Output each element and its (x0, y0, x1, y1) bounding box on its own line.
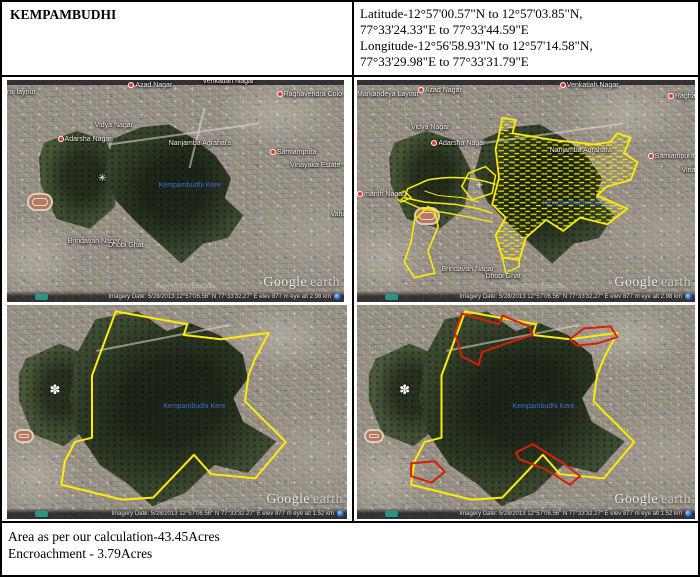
place-label: Samiampura (648, 153, 695, 161)
place-label: Nanjamba Agrahara (169, 140, 231, 148)
longitude-line-1: Longitude-12°56'58.93"N to 12°57'14.58"N… (360, 38, 692, 54)
tour-icon (385, 294, 398, 300)
red-place-dot-icon (431, 140, 437, 146)
globe-icon (685, 293, 692, 300)
satellite-panel-overview-survey: ✳ Markandeya Layout Azad Nagar (357, 80, 695, 302)
place-label: Venkatiah Nagar (202, 80, 254, 86)
status-bar: Imagery Date: 5/28/2013 12°57'06.56" N 7… (7, 508, 347, 519)
imagery-copyright: Image © 2016 DigitalGlobe (155, 284, 215, 290)
place-label: Raghavendra Colo (277, 91, 342, 99)
satellite-image-grid: ✳ raj layout Azad Nagar Venkatiah Nagar … (2, 77, 698, 523)
status-bar: Imagery Date: 5/28/2013 12°57'06.56" N 7… (7, 291, 344, 302)
place-label: Vidya Nagar (95, 122, 133, 130)
lake-name-label: Kempambudhi Kere (159, 182, 221, 189)
lake-name-label: Kempambudhi Kere (163, 403, 225, 410)
globe-icon (337, 510, 344, 517)
lake-name-label: Kempambudhi Kere (512, 403, 574, 410)
place-label: Samiampura (270, 149, 317, 157)
encroachment-line: Encroachment - 3.79Acres (8, 545, 692, 562)
globe-icon (334, 293, 341, 300)
lake-name-label: Kempambudhi Kere (543, 200, 605, 207)
red-place-dot-icon (560, 82, 566, 88)
latitude-line-2: 77°33'24.33"E to 77°33'44.59"E (360, 22, 692, 38)
globe-icon (685, 510, 692, 517)
red-place-dot-icon (270, 149, 276, 155)
coordinates-cell: Latitude-12°57'00.57"N to 12°57'03.85"N,… (352, 2, 698, 75)
red-place-dot-icon (277, 91, 283, 97)
place-label: Dhobi Ghat (485, 273, 520, 281)
latitude-line-1: Latitude-12°57'00.57"N to 12°57'03.85"N, (360, 6, 692, 22)
park-flower-icon: ✽ (50, 382, 61, 398)
imagery-copyright: Image © 2016 DigitalGlobe (506, 501, 566, 507)
status-bar: Imagery Date: 5/28/2013 12°57'06.56" N 7… (357, 291, 695, 302)
place-label: Vaha (331, 211, 344, 219)
stadium-track (27, 193, 53, 211)
page-title: KEMPAMBUDHI (2, 2, 350, 75)
place-label: Markandeya Layout (357, 91, 418, 99)
tour-icon (385, 511, 398, 517)
place-label: Vinaya (681, 167, 695, 175)
google-earth-watermark: Googleearth (266, 492, 343, 508)
imagery-seam-strip (7, 80, 344, 85)
lake-boundary-survey-overlay (357, 80, 695, 302)
place-label: raj layout (7, 89, 35, 97)
footer-notes: Area as per our calculation-43.45Acres E… (2, 523, 698, 567)
imagery-copyright: Image © 2016 DigitalGlobe (157, 501, 217, 507)
satellite-panel-overview-plain: ✳ raj layout Azad Nagar Venkatiah Nagar … (7, 80, 344, 302)
satellite-panel-zoom-encroachment: ✽ Kempambudhi Kere Image © 2016 DigitalG… (357, 305, 695, 519)
google-earth-watermark: Googleearth (263, 275, 340, 291)
longitude-line-2: 77°33'29.98"E to 77°33'31.79"E (360, 54, 692, 70)
park-asterisk-icon: ✳ (475, 180, 483, 191)
red-place-dot-icon (668, 93, 674, 99)
red-place-dot-icon (58, 136, 64, 142)
red-place-dot-icon (418, 87, 424, 93)
place-label: Azad Nagar (128, 82, 172, 90)
encroachment-overlay (357, 305, 695, 519)
document-page: KEMPAMBUDHI Latitude-12°57'00.57"N to 12… (0, 0, 700, 577)
park-flower-icon: ✽ (399, 382, 410, 398)
place-label: Adarsha Nagar (431, 140, 485, 148)
column-divider (352, 77, 354, 521)
status-bar: Imagery Date: 5/28/2013 12°57'06.56" N 7… (357, 508, 695, 519)
red-place-dot-icon (128, 82, 134, 88)
area-calculation-line: Area as per our calculation-43.45Acres (8, 528, 692, 545)
place-label: Nanjamba Agrahara (550, 147, 612, 155)
imagery-copyright: Image © 2016 DigitalGlobe (506, 284, 566, 290)
place-label: Dhobi Ghat (108, 242, 143, 250)
google-earth-watermark: Googleearth (614, 275, 691, 291)
lake-boundary-overlay (7, 305, 347, 519)
place-label: Venkatiah Nagar (560, 82, 619, 90)
place-label: Raghaven (668, 93, 695, 101)
place-label: Vinayaka Estate (290, 162, 340, 170)
place-label: manth Nagar (357, 191, 404, 199)
tour-icon (35, 511, 48, 517)
red-place-dot-icon (648, 153, 654, 159)
red-place-dot-icon (357, 191, 363, 197)
place-label: Vidya Nagar (411, 124, 449, 132)
satellite-panel-zoom-boundary: ✽ Kempambudhi Kere Image © 2016 DigitalG… (7, 305, 347, 519)
place-label: Adarsha Nagar (58, 136, 112, 144)
tour-icon (35, 294, 48, 300)
park-asterisk-icon: ✳ (98, 173, 106, 184)
place-label: Azad Nagar (418, 87, 462, 95)
header-row: KEMPAMBUDHI Latitude-12°57'00.57"N to 12… (2, 2, 698, 77)
google-earth-watermark: Googleearth (614, 492, 691, 508)
